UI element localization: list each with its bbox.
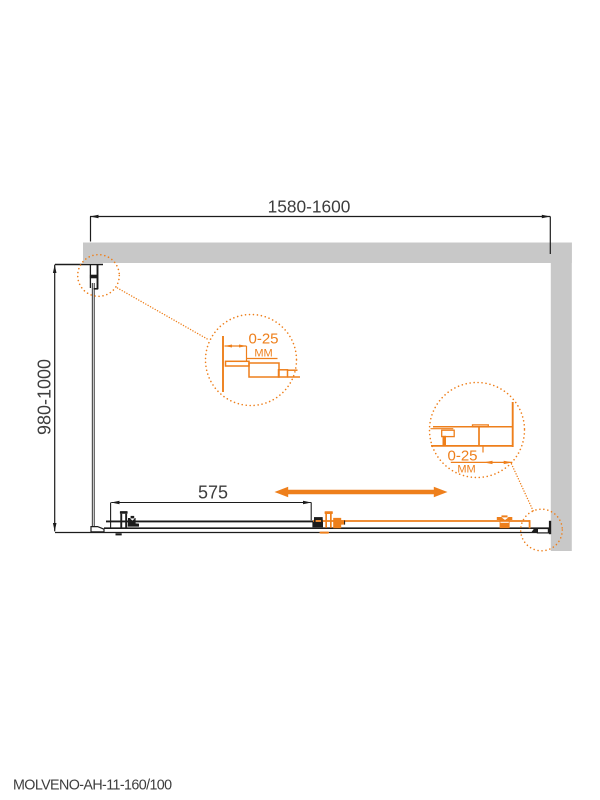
svg-text:1580-1600: 1580-1600 (268, 197, 351, 217)
svg-text:575: 575 (198, 483, 228, 503)
svg-text:MOLVENO-AH-11-160/100: MOLVENO-AH-11-160/100 (13, 778, 172, 794)
svg-text:MM: MM (457, 464, 475, 476)
svg-text:0-25: 0-25 (447, 448, 477, 465)
svg-text:980-1000: 980-1000 (34, 359, 54, 435)
svg-text:MM: MM (254, 347, 272, 359)
svg-text:0-25: 0-25 (248, 330, 278, 347)
